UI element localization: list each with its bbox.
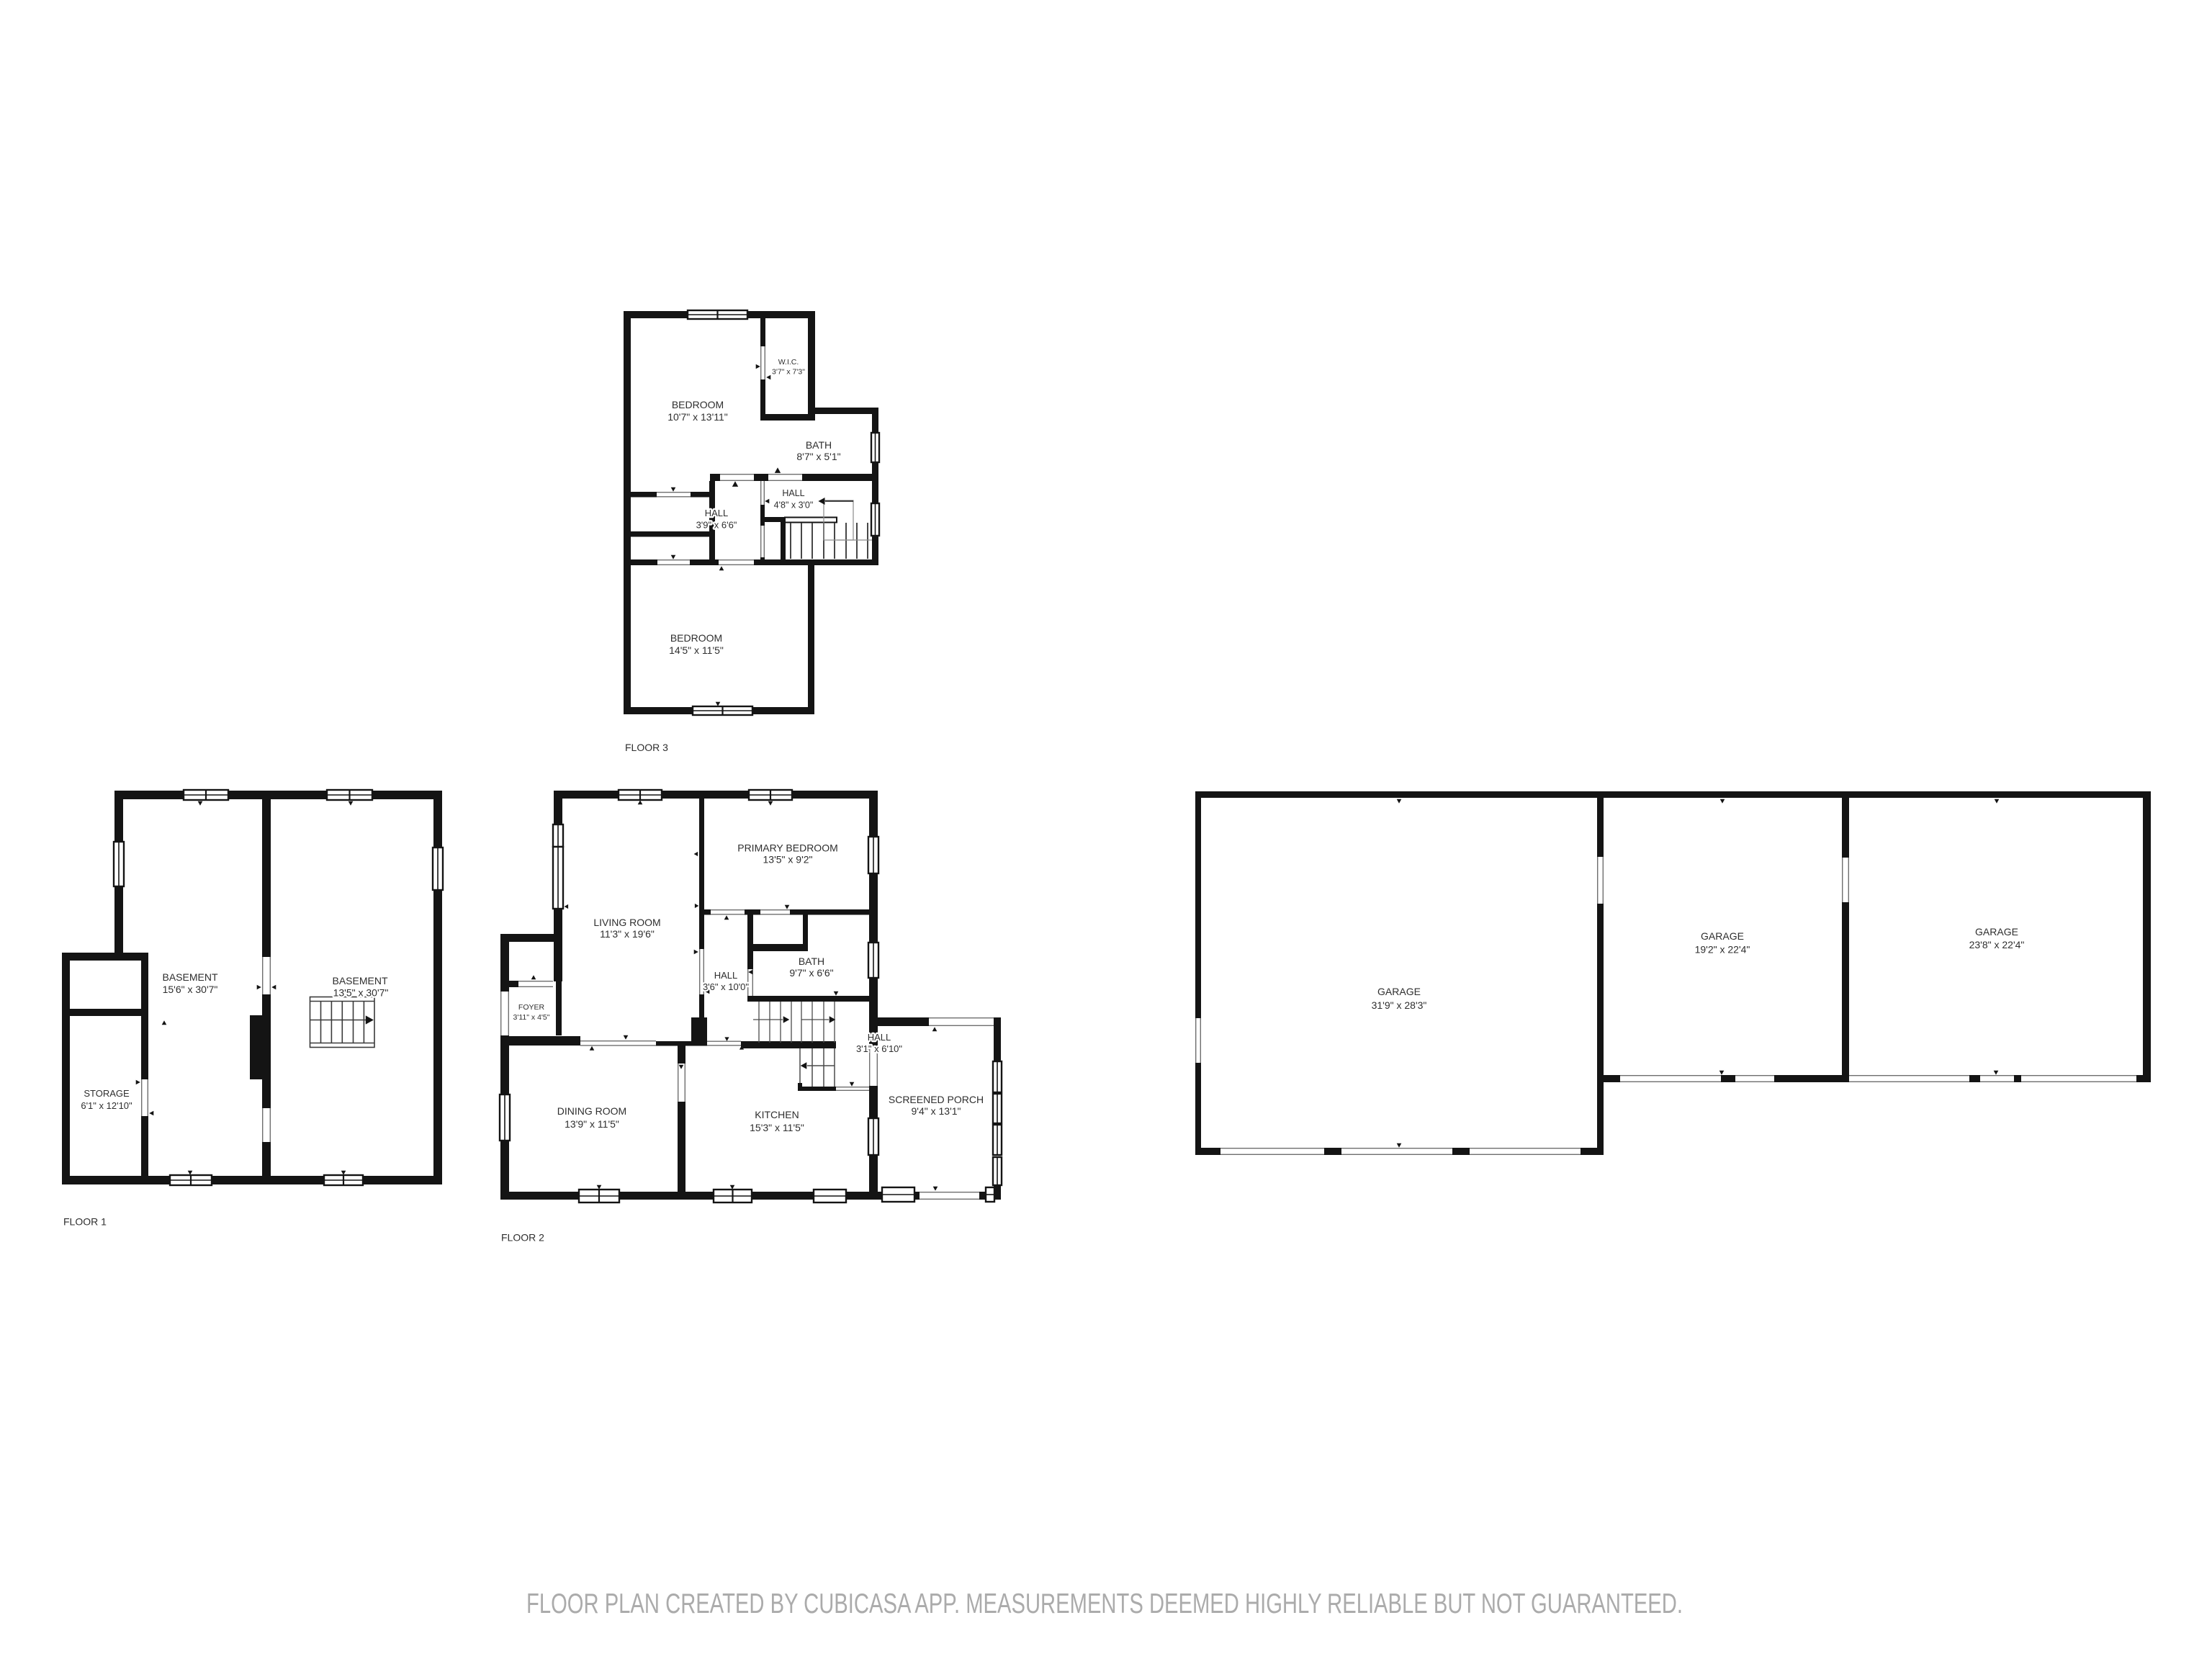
svg-text:FLOOR 1: FLOOR 1 (63, 1216, 107, 1228)
svg-text:HALL: HALL (714, 970, 738, 981)
svg-text:3'6" x 10'0": 3'6" x 10'0" (703, 981, 749, 992)
svg-text:PRIMARY BEDROOM: PRIMARY BEDROOM (737, 842, 838, 854)
svg-text:FOYER: FOYER (518, 1003, 545, 1012)
svg-text:SCREENED PORCH: SCREENED PORCH (889, 1094, 984, 1105)
svg-text:15'3" x 11'5": 15'3" x 11'5" (750, 1122, 804, 1133)
svg-text:3'1" x 6'10": 3'1" x 6'10" (856, 1043, 902, 1054)
svg-text:BATH: BATH (806, 439, 832, 451)
svg-text:GARAGE: GARAGE (1975, 926, 2018, 938)
svg-text:BATH: BATH (799, 956, 824, 967)
svg-text:BEDROOM: BEDROOM (670, 632, 722, 644)
svg-text:9'4" x 13'1": 9'4" x 13'1" (912, 1105, 961, 1117)
svg-text:19'2" x 22'4": 19'2" x 22'4" (1695, 944, 1750, 956)
svg-text:11'3" x 19'6": 11'3" x 19'6" (600, 928, 655, 940)
svg-text:15'6" x 30'7": 15'6" x 30'7" (163, 984, 218, 995)
svg-text:FLOOR 3: FLOOR 3 (625, 742, 668, 753)
svg-text:HALL: HALL (868, 1032, 891, 1043)
svg-text:23'8" x 22'4": 23'8" x 22'4" (1969, 939, 2025, 950)
svg-text:10'7" x 13'11": 10'7" x 13'11" (667, 411, 728, 423)
svg-text:FLOOR PLAN CREATED BY CUBICASA: FLOOR PLAN CREATED BY CUBICASA APP. MEAS… (526, 1588, 1683, 1619)
svg-text:STORAGE: STORAGE (84, 1088, 130, 1099)
svg-text:13'5" x 9'2": 13'5" x 9'2" (763, 854, 813, 866)
svg-text:4'8" x 3'0": 4'8" x 3'0" (774, 500, 814, 511)
svg-text:13'9" x 11'5": 13'9" x 11'5" (565, 1118, 619, 1130)
svg-text:13'5" x 30'7": 13'5" x 30'7" (333, 987, 389, 999)
svg-text:FLOOR 2: FLOOR 2 (501, 1232, 544, 1244)
svg-text:BASEMENT: BASEMENT (162, 971, 217, 983)
svg-text:3'11" x 4'5": 3'11" x 4'5" (513, 1013, 550, 1022)
svg-text:9'7" x 6'6": 9'7" x 6'6" (789, 967, 833, 979)
svg-text:HALL: HALL (782, 488, 804, 498)
svg-text:14'5" x 11'5": 14'5" x 11'5" (669, 644, 724, 656)
svg-text:31'9" x 28'3": 31'9" x 28'3" (1372, 999, 1427, 1011)
svg-text:HALL: HALL (705, 508, 729, 518)
svg-text:6'1" x 12'10": 6'1" x 12'10" (81, 1100, 132, 1111)
svg-text:KITCHEN: KITCHEN (755, 1109, 799, 1120)
svg-text:LIVING ROOM: LIVING ROOM (593, 917, 660, 928)
svg-text:GARAGE: GARAGE (1377, 986, 1421, 997)
svg-text:3'7" x 7'3": 3'7" x 7'3" (772, 368, 805, 377)
svg-text:BASEMENT: BASEMENT (332, 975, 387, 986)
svg-text:3'9" x 6'6": 3'9" x 6'6" (696, 520, 737, 531)
svg-text:DINING ROOM: DINING ROOM (557, 1105, 626, 1117)
svg-text:GARAGE: GARAGE (1701, 930, 1744, 942)
svg-text:BEDROOM: BEDROOM (672, 399, 724, 410)
svg-text:W.I.C.: W.I.C. (778, 358, 799, 367)
svg-text:8'7" x 5'1": 8'7" x 5'1" (796, 451, 840, 462)
